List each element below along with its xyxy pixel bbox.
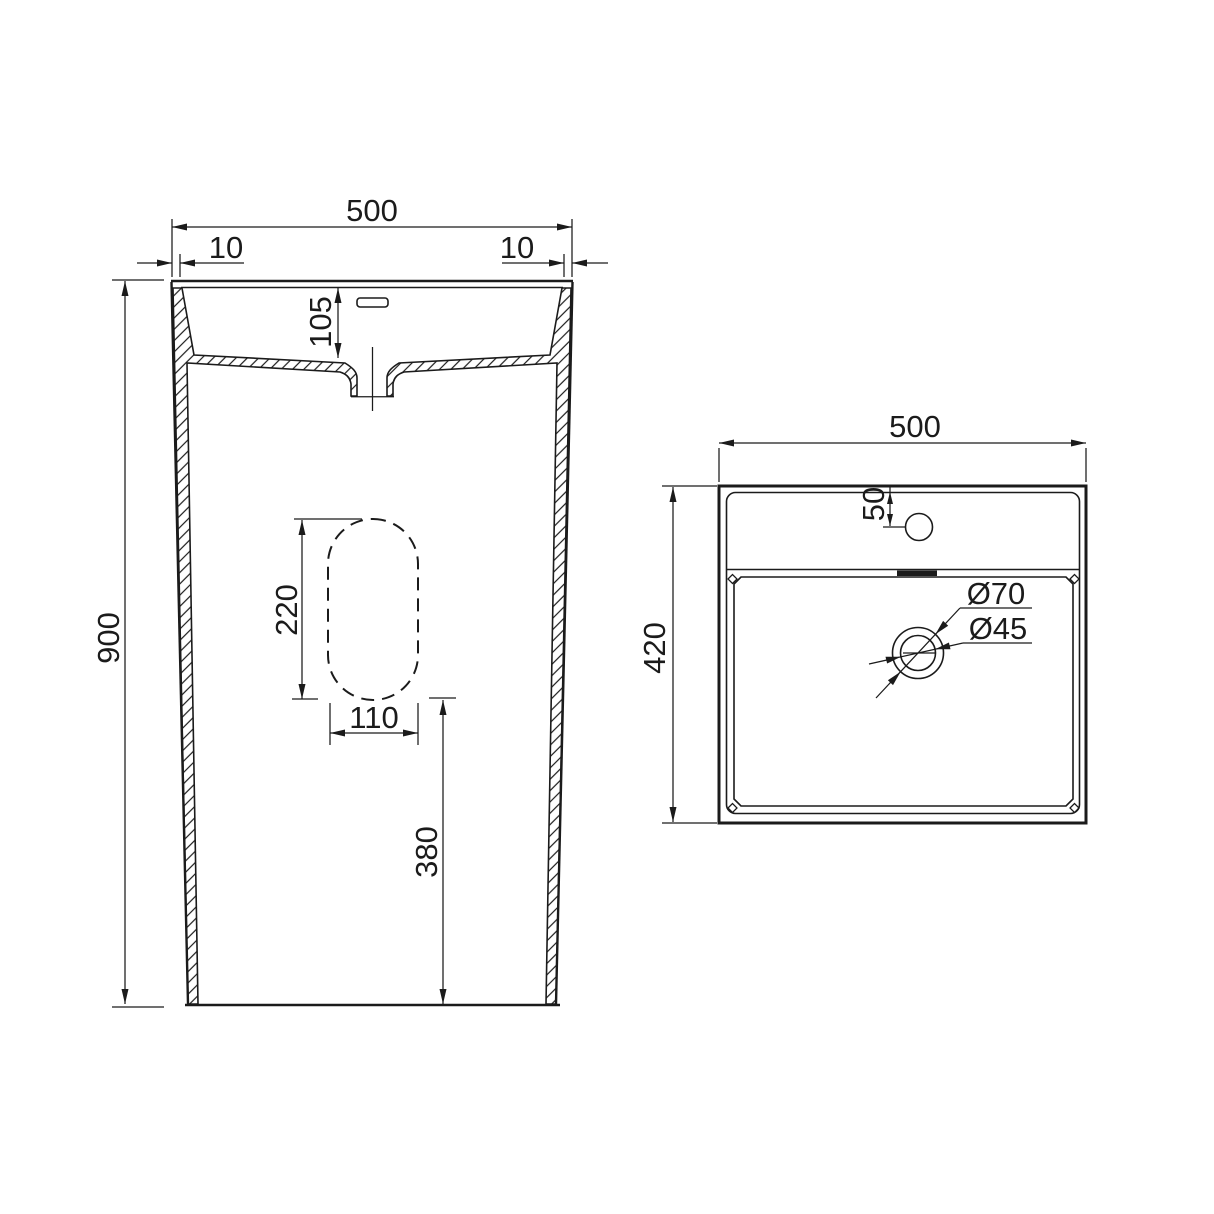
front-dim-wall-left: 10 <box>137 230 244 277</box>
top-dim-faucet-offset-label: 50 <box>856 487 891 521</box>
top-dim-overall-width: 500 <box>719 409 1086 482</box>
front-dim-cutout-elevation: 380 <box>409 698 456 1004</box>
front-dim-wall-left-label: 10 <box>209 230 243 265</box>
arrowhead-icon <box>440 700 447 715</box>
front-left-wall-section <box>173 288 357 1004</box>
front-right-wall-section <box>387 288 571 1004</box>
front-dim-basin-depth-label: 105 <box>303 296 338 348</box>
overflow-slot <box>357 298 388 307</box>
front-dim-basin-depth: 105 <box>303 288 342 358</box>
arrowhead-icon <box>157 260 172 267</box>
pedestal-cutout-dashed-outline <box>328 519 418 700</box>
arrowhead-icon <box>403 730 418 737</box>
front-dim-overall-width-label: 500 <box>346 193 398 228</box>
arrowhead-icon <box>719 440 734 447</box>
arrowhead-icon <box>440 989 447 1004</box>
front-dim-wall-right-label: 10 <box>500 230 534 265</box>
arrowhead-icon <box>122 989 129 1004</box>
front-dim-cutout-width-label: 110 <box>349 700 398 735</box>
arrowhead-icon <box>935 643 950 650</box>
arrowhead-icon <box>172 224 187 231</box>
faucet-hole <box>906 514 933 541</box>
technical-drawing-canvas: 500 10 10 105 <box>0 0 1214 1214</box>
front-dim-overall-height-label: 900 <box>91 612 126 664</box>
arrowhead-icon <box>330 730 345 737</box>
arrowhead-icon <box>299 684 306 699</box>
top-dim-overall-width-label: 500 <box>889 409 941 444</box>
top-view: 500 420 50 Ø70 <box>637 409 1086 823</box>
arrowhead-icon <box>670 487 677 502</box>
drawing-page: 500 10 10 105 <box>0 0 1214 1214</box>
front-dim-cutout-width: 110 <box>330 700 418 745</box>
arrowhead-icon <box>180 260 195 267</box>
top-dim-drain-inner-label: Ø45 <box>969 611 1028 646</box>
arrowhead-icon <box>557 224 572 231</box>
top-dim-overall-depth-label: 420 <box>637 622 672 674</box>
arrowhead-icon <box>572 260 587 267</box>
front-dim-cutout-elevation-label: 380 <box>409 826 444 878</box>
front-dim-cutout-height-label: 220 <box>269 584 304 636</box>
front-view: 500 10 10 105 <box>91 193 608 1007</box>
top-dim-drain-outer-label: Ø70 <box>967 576 1026 611</box>
front-dim-overall-height: 900 <box>91 280 164 1007</box>
arrowhead-icon <box>670 807 677 822</box>
front-dim-cutout-height: 220 <box>269 519 362 699</box>
arrowhead-icon <box>1071 440 1086 447</box>
top-dim-overall-depth: 420 <box>637 486 717 823</box>
arrowhead-icon <box>122 281 129 296</box>
arrowhead-icon <box>549 260 564 267</box>
overflow-slot-top <box>897 571 937 577</box>
top-outer-rect <box>719 486 1086 823</box>
arrowhead-icon <box>886 657 901 664</box>
arrowhead-icon <box>299 520 306 535</box>
front-dim-wall-right: 10 <box>500 230 608 277</box>
